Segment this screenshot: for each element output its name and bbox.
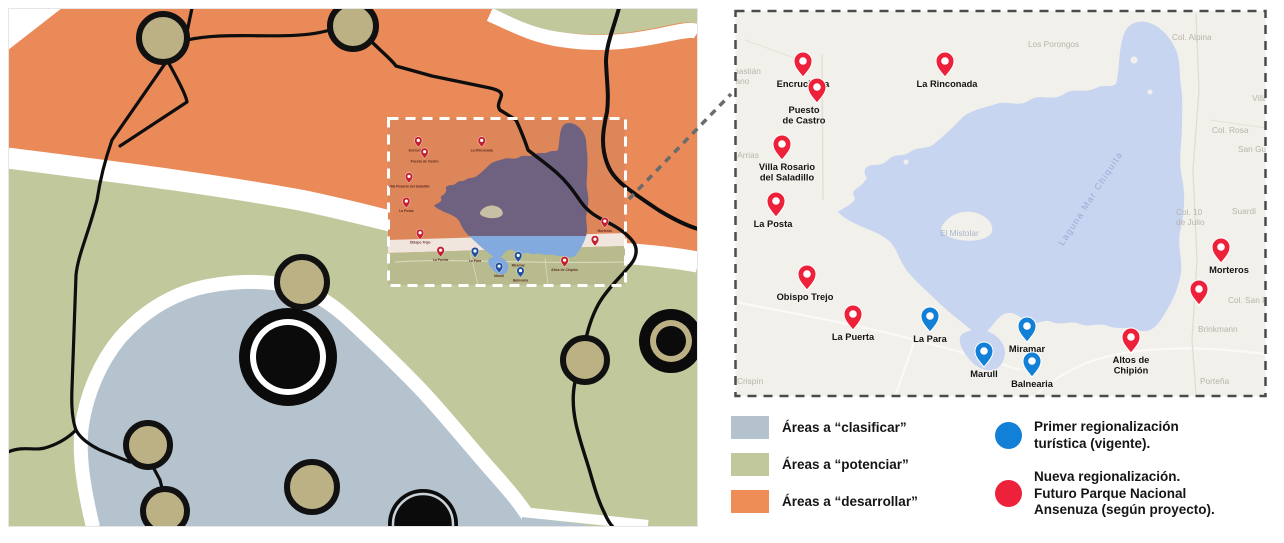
mini-label-la-para: La Para bbox=[469, 259, 481, 263]
bg-place-label: Suardi bbox=[1232, 206, 1256, 216]
town-label-la-para: La Para bbox=[913, 334, 947, 344]
town-label-marull: Marull bbox=[970, 369, 997, 379]
mini-label-obispo-trejo: Obispo Trejo bbox=[410, 241, 431, 245]
primer-label: Primer regionalización turística (vigent… bbox=[1034, 419, 1179, 452]
clasificar-swatch bbox=[731, 416, 769, 439]
bg-place-label: Col. Alpina bbox=[1172, 32, 1212, 42]
mini-label-la-rinconada: La Rinconada bbox=[471, 148, 493, 152]
bg-place-label: Porteña bbox=[1200, 376, 1229, 386]
mini-label-la-posta: La Posta bbox=[399, 209, 413, 213]
mini-label-villa-rosario-del-saladillo: Villa Rosario del Saladillo bbox=[388, 184, 429, 188]
bg-place-label: Col. 10de Julio bbox=[1176, 207, 1205, 227]
bg-place-label: Col. San Pedro bbox=[1228, 295, 1284, 305]
legend-row-nueva: Nueva regionalización. Futuro Parque Nac… bbox=[995, 469, 1215, 519]
town-label-la-posta: La Posta bbox=[754, 219, 794, 229]
mini-label-morteros: Morteros bbox=[598, 229, 613, 233]
nueva-label: Nueva regionalización. Futuro Parque Nac… bbox=[1034, 469, 1215, 519]
bg-place-label: Villa Trinidad bbox=[1252, 93, 1284, 103]
town-label-la-puerta: La Puerta bbox=[832, 332, 875, 342]
potenciar-label: Áreas a “potenciar” bbox=[782, 457, 909, 472]
mini-label-la-puerta: La Puerta bbox=[433, 258, 449, 262]
bg-place-label: Las Arrias bbox=[722, 150, 759, 160]
town-label-villa-rosario-del-saladillo: Villa Rosariodel Saladillo bbox=[759, 162, 815, 183]
town-label-balnearia: Balnearia bbox=[1011, 379, 1054, 389]
nueva-dot bbox=[995, 480, 1022, 507]
clasificar-label: Áreas a “clasificar” bbox=[782, 420, 907, 435]
legend-row-clasificar: Áreas a “clasificar” bbox=[731, 416, 918, 439]
pin-legend: Primer regionalización turística (vigent… bbox=[995, 419, 1215, 519]
legend-row-primer: Primer regionalización turística (vigent… bbox=[995, 419, 1215, 452]
mini-label-marull: Marull bbox=[494, 274, 504, 278]
bg-place-label: Col. Rosa bbox=[1212, 125, 1249, 135]
town-label-morteros: Morteros bbox=[1209, 265, 1249, 275]
legend-row-desarrollar: Áreas a “desarrollar” bbox=[731, 490, 918, 513]
mini-label-miramar: Miramar bbox=[512, 263, 526, 267]
mini-label-puesto-de-castro: Puesto de Castro bbox=[411, 160, 439, 164]
town-label-la-rinconada: La Rinconada bbox=[917, 79, 979, 89]
legend-row-potenciar: Áreas a “potenciar” bbox=[731, 453, 918, 476]
mini-label-altos-de-chipion: Altos de Chipión bbox=[551, 268, 578, 272]
detail-map-panel: SebastiánElcanoLas ArriasCrispínLos Poro… bbox=[722, 11, 1284, 396]
mini-label-balnearia: Balnearia bbox=[513, 279, 528, 283]
regional-scheme-map: EncrucijadaPuesto de CastroLa RinconadaV… bbox=[8, 3, 703, 543]
town-label-altos-de-chipion: Altos deChipión bbox=[1113, 355, 1150, 376]
town-label-obispo-trejo: Obispo Trejo bbox=[777, 292, 834, 302]
bg-place-label: El Mistolar bbox=[940, 228, 979, 238]
area-legend: Áreas a “clasificar” Áreas a “potenciar”… bbox=[731, 416, 918, 513]
desarrollar-swatch bbox=[731, 490, 769, 513]
infographic: EncrucijadaPuesto de CastroLa RinconadaV… bbox=[0, 0, 1284, 543]
primer-dot bbox=[995, 422, 1022, 449]
town-label-miramar: Miramar bbox=[1009, 344, 1046, 354]
mini-inset-map bbox=[388, 118, 625, 285]
bg-place-label: San Guillermo bbox=[1238, 144, 1284, 154]
potenciar-swatch bbox=[731, 453, 769, 476]
town-label-puesto-de-castro: Puestode Castro bbox=[783, 105, 826, 126]
bg-place-label: Crispín bbox=[737, 376, 764, 386]
bg-place-label: Los Porongos bbox=[1028, 39, 1079, 49]
desarrollar-label: Áreas a “desarrollar” bbox=[782, 494, 918, 509]
bg-place-label: Brinkmann bbox=[1198, 324, 1238, 334]
